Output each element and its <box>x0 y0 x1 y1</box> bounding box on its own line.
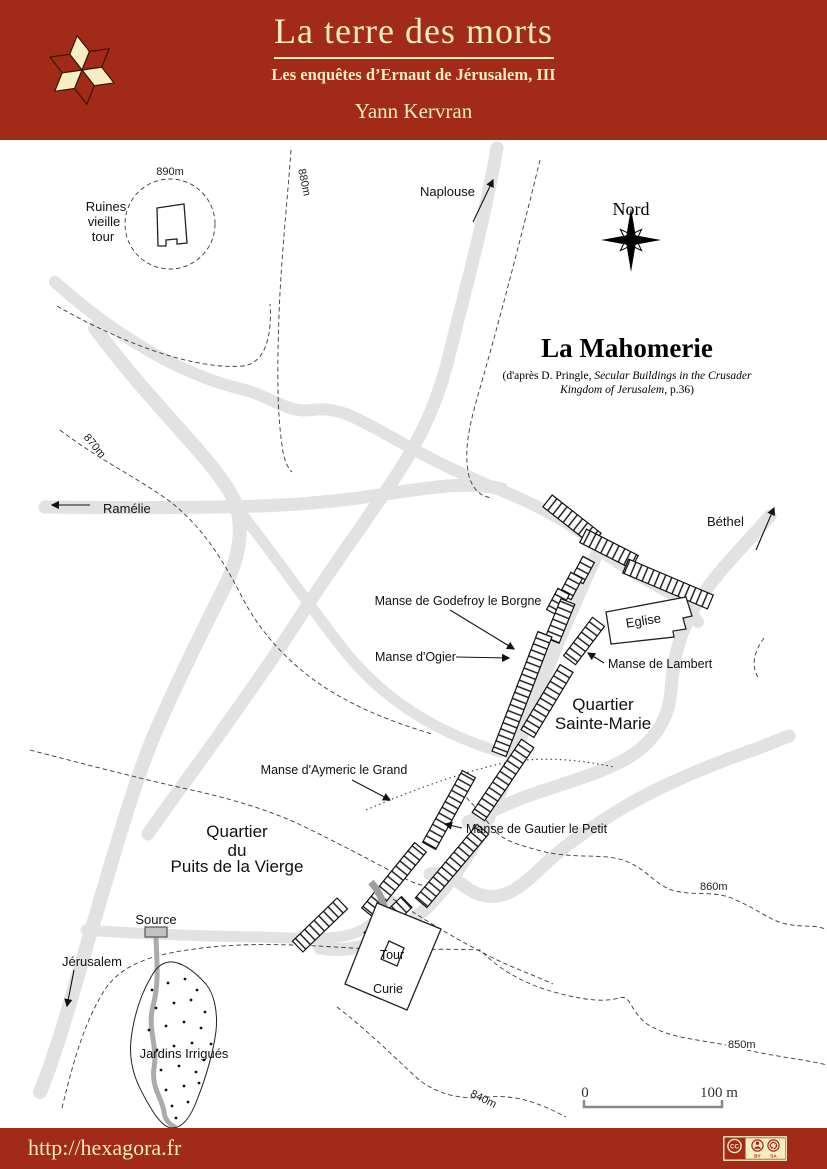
manse-lambert-label: Manse de Lambert <box>608 657 713 671</box>
source-label: Source <box>135 912 176 927</box>
naplouse-label: Naplouse <box>420 184 475 199</box>
svg-text:BY: BY <box>754 1154 760 1159</box>
header: La terre des morts Les enquêtes d’Ernaut… <box>0 0 827 140</box>
cc-icon: CC <box>728 1139 741 1152</box>
svg-text:SA: SA <box>770 1154 777 1159</box>
tour-label: Tour <box>380 948 404 962</box>
map-title: La Mahomerie <box>541 333 713 363</box>
source-marker <box>145 927 167 937</box>
bethel-label: Béthel <box>707 514 744 529</box>
manse-gautier-label: Manse de Gautier le Petit <box>466 822 608 836</box>
manse-godefroy-label: Manse de Godefroy le Borgne <box>375 594 542 608</box>
cc-by-sa-badge: CC BY SA <box>723 1136 787 1161</box>
title-divider <box>274 57 554 59</box>
map-attribution-line1: (d'après D. Pringle, Secular Buildings i… <box>503 370 753 382</box>
scale-end-label: 100 m <box>700 1085 738 1101</box>
jardins-label: Jardins Irrigués <box>140 1046 229 1061</box>
curie-label: Curie <box>373 982 403 996</box>
contour-label-890: 890m <box>156 166 184 178</box>
manse-ogier-label: Manse d'Ogier <box>375 650 456 664</box>
book-title: La terre des morts <box>0 12 827 52</box>
series-subtitle: Les enquêtes d’Ernaut de Jérusalem, III <box>0 65 827 85</box>
site-url: http://hexagora.fr <box>28 1135 181 1161</box>
svg-text:CC: CC <box>730 1143 739 1150</box>
north-label: Nord <box>613 199 650 219</box>
author-name: Yann Kervran <box>0 99 827 124</box>
page: La terre des morts Les enquêtes d’Ernaut… <box>0 0 827 1169</box>
contour-label-860: 860m <box>700 881 728 893</box>
manse-aymeric-label: Manse d'Aymeric le Grand <box>261 763 408 777</box>
ramelie-label: Ramélie <box>103 501 151 516</box>
map: La Mahomerie (d'après D. Pringle, Secula… <box>0 140 827 1128</box>
footer: http://hexagora.fr CC BY SA <box>0 1128 827 1169</box>
jerusalem-label: Jérusalem <box>62 954 122 969</box>
contour-label-850: 850m <box>728 1039 756 1051</box>
ruins-tower-outline <box>157 204 187 246</box>
scale-start-label: 0 <box>581 1085 589 1101</box>
map-attribution-line2: Kingdom of Jerusalem, p.36) <box>559 384 694 396</box>
